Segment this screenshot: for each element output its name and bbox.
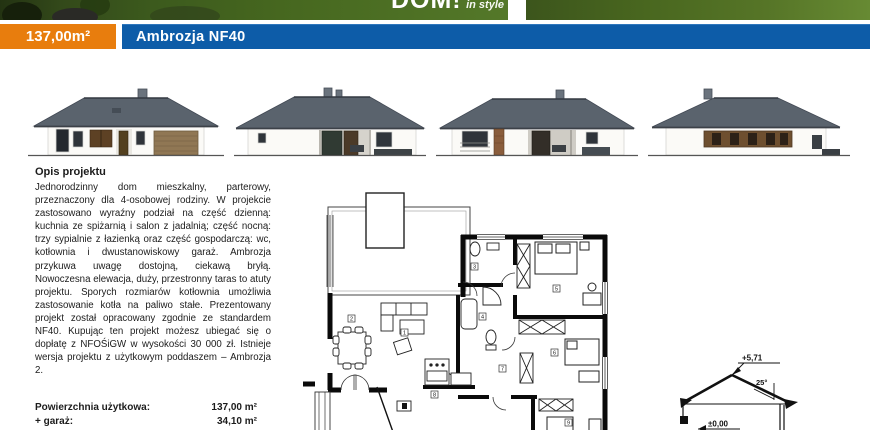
svg-text:3: 3: [473, 265, 476, 271]
project-description: Opis projektu Jednorodzinny dom mieszkal…: [35, 166, 271, 377]
stat-row: + garaż: 34,10 m²: [35, 415, 257, 429]
svg-text:7: 7: [501, 367, 504, 373]
stat-label: Powierzchnia użytkowa:: [35, 401, 150, 415]
floor-level-label: ±0,00: [708, 420, 729, 429]
cross-section: +5,71 25° ±0,00: [680, 342, 870, 430]
svg-text:8: 8: [433, 393, 436, 399]
area-badge: 137,00m²: [0, 24, 116, 49]
banner-photo-left: DOM! in style: [0, 0, 508, 20]
stat-label: + garaż:: [35, 415, 73, 429]
plant-silhouette: [2, 2, 42, 20]
svg-text:4: 4: [481, 315, 484, 321]
project-sheet-page: DOM! in style 137,00m² Ambrozja NF40: [0, 0, 870, 430]
stat-row: Powierzchnia użytkowa: 137,00 m²: [35, 401, 257, 415]
banner-photo-right: [526, 0, 870, 20]
elevations-row: [26, 85, 852, 161]
svg-text:6: 6: [553, 351, 556, 357]
rock-silhouette: [52, 8, 98, 20]
ridge-height-label: +5,71: [742, 354, 763, 363]
svg-text:1: 1: [403, 331, 406, 337]
svg-text:9: 9: [567, 421, 570, 427]
logo-text-main: DOM!: [391, 0, 462, 14]
floor-plan: 12 43 56 78 9: [303, 187, 649, 430]
side-elevation-window-band-drawing: [646, 85, 852, 161]
stat-value: 34,10 m²: [217, 415, 257, 429]
svg-text:5: 5: [555, 287, 558, 293]
front-elevation-drawing: [26, 85, 226, 161]
cross-section-drawing: +5,71 25° ±0,00: [680, 342, 870, 430]
side-elevation-terrace-drawing: [232, 85, 428, 161]
description-body: Jednorodzinny dom mieszkalny, parterowy,…: [35, 181, 271, 377]
floor-plan-drawing: 12 43 56 78 9: [303, 187, 649, 430]
stat-value: 137,00 m²: [211, 401, 257, 415]
page-title: Ambrozja NF40: [122, 24, 870, 49]
grass-patch: [150, 6, 220, 20]
roof-angle-label: 25°: [756, 378, 767, 387]
logo-text-sub: in style: [466, 0, 504, 11]
area-stats: Powierzchnia użytkowa: 137,00 m² + garaż…: [35, 401, 257, 429]
description-heading: Opis projektu: [35, 166, 271, 178]
rear-elevation-porch-drawing: [434, 85, 640, 161]
svg-text:2: 2: [350, 317, 353, 323]
dom-in-style-logo: DOM! in style: [391, 0, 504, 15]
